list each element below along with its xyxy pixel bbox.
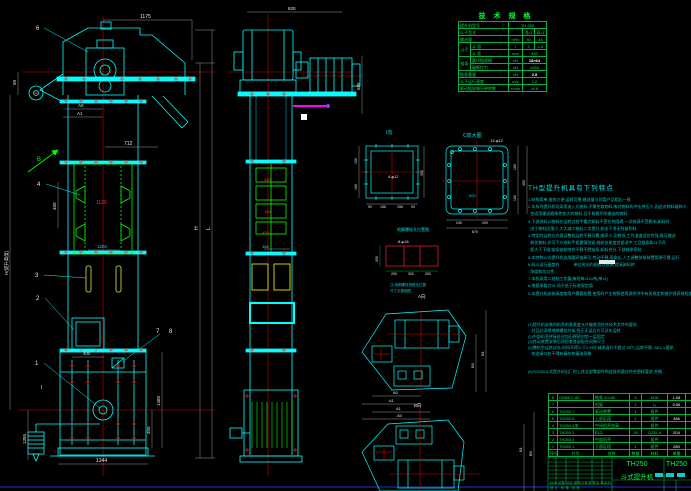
bom-name: 链条 20×80 [594, 394, 630, 401]
dim-top-width: 1175 [140, 14, 151, 20]
tech-chain-group: 链条 [459, 57, 471, 71]
anchor-bolt-detail [380, 246, 438, 271]
section-mark-i: I [41, 385, 42, 391]
view-arrow-b-label: B [37, 157, 41, 163]
view-a-label: A向 [418, 293, 426, 299]
tech-chainspec-value: 18×64 [523, 57, 547, 64]
bom-remark [686, 394, 691, 401]
title-block-marker-2 [666, 473, 674, 477]
bom-qty: 1 [630, 401, 642, 408]
dim-bucket-pitch: 450 [52, 202, 57, 210]
side-d3: 435 [262, 230, 269, 235]
dim-h-right: H [194, 226, 200, 230]
highlighted-text-block [599, 260, 615, 264]
bom-remark [686, 401, 691, 408]
side-casing [246, 96, 296, 455]
bom-weight [668, 408, 686, 415]
anchor-b2: 300 [408, 272, 414, 276]
balloon-2: 2 [36, 296, 40, 302]
tech-pitch-unit: mm [509, 50, 523, 57]
detail-c-label: C放大图 [463, 132, 482, 139]
note-line: 净度和均匀性. [528, 268, 691, 275]
bom-no: 7 [549, 401, 558, 408]
head-section [29, 22, 195, 128]
anchor-note2: 尺寸见基础图 [390, 288, 411, 293]
cad-drawing-canvas: 1175 712 A0 A1 50 450 1130 1202 400 1344… [0, 0, 691, 491]
tech-pitch-label: 斗 距 [471, 50, 509, 57]
dim-mid-red: 1130 [96, 200, 107, 206]
detail-i-left1: 160 [354, 158, 358, 164]
bom-name: 中部机壳 [594, 436, 630, 443]
notes-list-1: 1.结构简单,维修方便,运转可靠,输送量与同类产品相比一致.2.本系列提升机均采… [528, 196, 691, 297]
tech-table-title: 技 术 规 格 [458, 11, 554, 21]
bom-remark [686, 429, 691, 436]
bom-row: 1 TH250.1 下部区段 1 组件 280 [549, 443, 691, 450]
tech-break-label: 破断拉力 [471, 64, 509, 71]
detail-c-inner: 600 [469, 193, 476, 198]
bom-no: 8 [549, 394, 558, 401]
tech-speed-label: 斗子运行速度 [459, 78, 509, 85]
detail-i-holes: 4-φ12 [388, 174, 399, 179]
bom-hdr-qty: 数量 [630, 450, 642, 457]
balloon-6: 6 [36, 26, 40, 32]
note-line: 9.本提升机安装高度按用户需要配置,使用时户主按照使用说明书中有关规定和维护保养… [528, 290, 691, 297]
view-b-a1: A1 [396, 406, 402, 411]
bom-code: TH250.6 [558, 415, 594, 422]
tech-pitch-value: 480 [523, 50, 547, 57]
bom-no: 6 [549, 408, 558, 415]
bom-row: 3 TH250.3 料斗 28 Q235-A 204 [549, 429, 691, 436]
balloon-3: 3 [35, 273, 39, 279]
view-a-a0: A0 [393, 390, 399, 395]
title-block-marker-1 [655, 473, 663, 477]
bom-no: 3 [549, 429, 558, 436]
bom-no: 5 [549, 415, 558, 422]
bom-qty: 1 [630, 408, 642, 415]
top-view-a [362, 310, 486, 404]
tech-chainspec-unit: kN [509, 57, 523, 64]
bom-material: 组件 [642, 436, 668, 443]
bom-hdr-code: 代号 [558, 450, 594, 457]
view-a-b0: B0 [470, 362, 475, 368]
view-b-a0: A0 [397, 413, 403, 418]
anchor-left: 450 [375, 256, 379, 262]
detail-c-r2: 160 [513, 195, 517, 201]
side-boot-plus [245, 394, 297, 452]
bom-no: 1 [549, 443, 558, 450]
tech-model-value: TH 250 [509, 22, 547, 29]
tech-rpm-unit: r/min [509, 85, 523, 92]
detail-c-holes: 13-φ12 [490, 138, 504, 143]
note-line: 距大于下限,链条链轮啮合平稳不脱链条,卸料充分,下部轴承密封. [528, 246, 691, 253]
dim-boot2: 1460 [156, 395, 161, 406]
dim-l-right: L [206, 227, 212, 230]
tech-weight-unit: kN [509, 71, 523, 78]
dim-left-small: 50 [12, 79, 17, 85]
bom-weight: 386 [668, 415, 686, 422]
yellow-buckets [252, 264, 290, 290]
tech-capacity-v1: 30 [523, 36, 535, 43]
bom-row: 8 GB5927-86 链条 20×80 4 M16 1.08 [549, 394, 691, 401]
bom-weight: 0.06 [668, 401, 686, 408]
tech-model-label: 提升机型号 [459, 22, 509, 29]
front-dim-lines [10, 20, 215, 464]
bom-no: 4 [549, 422, 558, 429]
takeup-weight [28, 424, 100, 461]
bom-name: 机架 [594, 401, 630, 408]
balloon-1: 1 [35, 361, 39, 367]
anchor-b3: 200 [425, 272, 431, 276]
top-view-b [362, 408, 534, 491]
bom-row: 2 TH250.2 中部机壳 组件 [549, 436, 691, 443]
tech-capacity-v2: 48 [535, 36, 547, 43]
title-block-drawing-no: TH250 [666, 461, 691, 468]
detail-c-b1: 240 [456, 221, 462, 225]
dim-base: 1344 [96, 458, 107, 464]
bom-weight [668, 436, 686, 443]
dim-h-left: H(提升高度) [3, 250, 10, 275]
bom-remark [686, 415, 691, 422]
side-head-drive [234, 30, 360, 96]
side-boot [230, 390, 302, 462]
side-dim-top: 820 [288, 6, 296, 11]
tech-vol-v1: 3 [523, 43, 535, 50]
bom-row: 5 TH250.6 上部区段 1 组件 386 [549, 415, 691, 422]
bom-code: TH250.1 [558, 443, 594, 450]
note-line: 3.下部进料斗物料在运转过程中重力卸料不受任何阻碍,一次装满不受影响,卸料时, [528, 218, 691, 225]
side-d2: 180 [264, 209, 271, 214]
tech-rpm-label: 驱动链轮每分钟转数 [459, 85, 509, 92]
bom-material: M16 [642, 394, 668, 401]
tech-weight-value: 2.5 [523, 71, 547, 78]
detail-c-r1: 160 [513, 164, 517, 170]
anchor-b1: 200 [391, 272, 397, 276]
title-block-marker-3 [677, 473, 685, 477]
bom-qty: 1 [630, 443, 642, 450]
bom-header-row: 序号 代号 名称 数量 材料 单重 备注 [549, 450, 691, 457]
detail-i-b2: 156 [380, 205, 386, 209]
tech-type-v2: 深斗 [535, 29, 547, 36]
bom-material: 组件 [642, 422, 668, 429]
bom-code: TH250.2 [558, 436, 594, 443]
flange-plus-marks [64, 99, 143, 352]
bom-name: 料斗 [594, 429, 630, 436]
notes-final-line: (6)TH250斗式提升机出厂时上述全部零部件和连接质量应符合图样要求 合格. [528, 369, 663, 375]
bom-code: TH250.3 [558, 429, 594, 436]
bom-weight: 280 [668, 443, 686, 450]
view-b-b1: B1 [518, 446, 523, 452]
tech-vol-label: 斗 容 [471, 43, 509, 50]
detail-i-b3: 156 [397, 205, 403, 209]
tech-speed-value: 1.2 [523, 78, 547, 85]
bom-material: 组件 [642, 408, 668, 415]
detail-c-btotal: 670 [472, 230, 478, 234]
dim-chute: 712 [124, 141, 133, 147]
bom-remark [686, 408, 691, 415]
side-bucket-stack [256, 164, 286, 252]
view-a-b1: B1 [480, 350, 485, 356]
bom-qty [630, 422, 642, 429]
bom-qty: 28 [630, 429, 642, 436]
view-b-label: B向 [414, 402, 422, 408]
bom-hdr-no: 序号 [549, 450, 558, 457]
view-a-a1: A1 [389, 398, 395, 403]
tech-spec-table: 提升机型号 TH 250 斗子型式 浅斗 深斗 输送量 m³/h 30 48 斗… [458, 21, 547, 92]
anchor-note1: 注:地脚螺栓规格及位置 [390, 282, 426, 287]
tech-type-label: 斗子型式 [459, 29, 509, 36]
boot-bucket-hatch [252, 402, 292, 448]
inspection-door [72, 318, 104, 350]
side-d1: 250 [264, 177, 271, 182]
bom-hdr-rem: 备注 [686, 450, 691, 457]
notes-block: TH型提升机具有下列特点 1.结构简单,维修方便,运转可靠,输送量与同类产品相比… [528, 182, 691, 297]
note-line: 也适用输送磨琢性较大的物料,且不易损坏所输送的物料. [528, 210, 691, 217]
dim-door: 400 [83, 351, 91, 356]
detail-i-right: 300 [420, 170, 424, 176]
notes-title: TH型提升机具有下列特点 [528, 182, 691, 192]
tech-speed-unit: m/s [509, 78, 523, 85]
tech-capacity-unit: m³/h [509, 36, 523, 43]
bom-name: 上部区段 [594, 415, 630, 422]
bom-table: 8 GB5927-86 链条 20×80 4 M16 1.08 7 机架 1 L… [548, 393, 691, 457]
view-b-b0: B0 [528, 450, 533, 456]
bom-hdr-mat: 材料 [642, 450, 668, 457]
note-line: 7.本机采用二班制工作量(每班每斗31吨(单斗). [528, 275, 691, 282]
note-line: 由于物料回落少,大大减少物料二次提升,卸出干净无残留积料. [528, 225, 691, 232]
bom-qty [630, 436, 642, 443]
bom-row: 4 TH250.4加 中间机壳加高 组件 [549, 422, 691, 429]
view-arrow-b [28, 150, 58, 172]
tech-weight-label: 链条重量 [459, 71, 509, 78]
dim-a1: A1 [77, 111, 83, 116]
tech-break-value: ≥350 [523, 64, 547, 71]
bom-remark [686, 422, 691, 429]
bom-qty: 1 [630, 415, 642, 422]
tech-vol-v2: 1.5 [535, 43, 547, 50]
balloon-8: 8 [169, 329, 173, 335]
note-line: 4.特定的运转方式保证整机运转平稳可靠,噪声小,功耗低,工作温度适应性强,既可输… [528, 232, 691, 239]
bom-qty: 4 [630, 394, 642, 401]
purple-dot [326, 104, 330, 108]
side-view [228, 12, 362, 476]
tech-chainspec-label: 圆环链规格 [471, 57, 509, 64]
front-view [10, 16, 215, 476]
bom-material: 组件 [642, 415, 668, 422]
notes-list-2: (1)提升机安装时机壳的垂直度允许偏差须符合技术文件的要求, 并且必须将地脚螺栓… [528, 322, 675, 357]
bom-material: L₅ [642, 401, 668, 408]
side-d4: 388 [262, 244, 269, 249]
bom-row: 6 TH250.7 驱动装置 1 组件 [549, 408, 691, 415]
tech-bucket-group: 斗子 [459, 43, 471, 57]
dim-boot1: 350 [146, 426, 151, 434]
anchor-title: 地脚螺栓孔位置图 [397, 226, 429, 232]
bom-name: 驱动装置 [594, 408, 630, 415]
note-line: 1.结构简单,维修方便,运转可靠,输送量与同类产品相比一致. [528, 196, 691, 203]
bom-table-wrap: 8 GB5927-86 链条 20×80 4 M16 1.08 7 机架 1 L… [548, 393, 691, 457]
bom-code: TH250.4加 [558, 422, 594, 429]
observation-slots [86, 266, 121, 292]
bom-material: 组件 [642, 443, 668, 450]
tech-break-unit: kN [509, 64, 523, 71]
dim-takeup: 1355 [22, 433, 27, 444]
balloon-4: 4 [37, 182, 41, 188]
bom-remark [686, 443, 691, 450]
bom-row: 7 机架 1 L₅ 0.06 [549, 401, 691, 408]
dim-mid2: 1202 [97, 244, 108, 249]
bom-hdr-wt: 单重 [668, 450, 686, 457]
bom-material: Q235-A [642, 429, 668, 436]
bom-code: GB5927-86 [558, 394, 594, 401]
note-line: 各连接口处不得有漏灰和漏油现象. [528, 351, 675, 357]
title-block-sign-row: 设 计 校 核 批 准 [550, 486, 612, 491]
tech-vol-unit: l [509, 43, 523, 50]
detail-i-label: I向 [386, 129, 392, 136]
title-block-model: TH250 [612, 461, 662, 468]
bom-remark [686, 436, 691, 443]
bom-weight [668, 422, 686, 429]
bom-code [558, 401, 594, 408]
white-marker [301, 114, 307, 120]
tech-rpm-value: 44.8 [523, 85, 547, 92]
side-dim-right: 585 [356, 82, 361, 90]
note-line: 粉状物料,亦可下方给料手扳重锤张紧,链轮张紧度宜紧适中,工且链条和斗子间 [528, 239, 691, 246]
bom-code: TH250.7 [558, 408, 594, 415]
detail-c-rtotal: 450 [522, 180, 526, 186]
bom-rows: 8 GB5927-86 链条 20×80 4 M16 1.08 7 机架 1 L… [549, 394, 691, 450]
bom-weight: 1.08 [668, 394, 686, 401]
bom-weight: 204 [668, 429, 686, 436]
boot-section [50, 352, 155, 456]
bom-name: 下部区段 [594, 443, 630, 450]
bom-hdr-name: 名称 [594, 450, 630, 457]
bom-name: 中间机壳加高 [594, 422, 630, 429]
dim-a0: A0 [78, 103, 84, 108]
balloon-7: 7 [156, 329, 160, 335]
detail-view-c [442, 142, 527, 228]
note-line: 8.地基承载力31 须不低于标准规定值. [528, 282, 691, 289]
tech-type-v1: 浅斗 [523, 29, 535, 36]
detail-i-left2: 160 [354, 184, 358, 190]
anchor-holes: 8-φ18 [398, 239, 409, 244]
bom-no: 2 [549, 436, 558, 443]
note-line: 2.本系列提升机均采用流入式装料,不需挖取物料,故对物料的冲击挤压小,因此对物料… [528, 203, 691, 210]
tech-capacity-label: 输送量 [459, 36, 509, 43]
detail-c-b2: 200 [482, 221, 488, 225]
detail-i-b4: 90 [411, 205, 415, 209]
detail-i-b1: 90 [368, 205, 372, 209]
